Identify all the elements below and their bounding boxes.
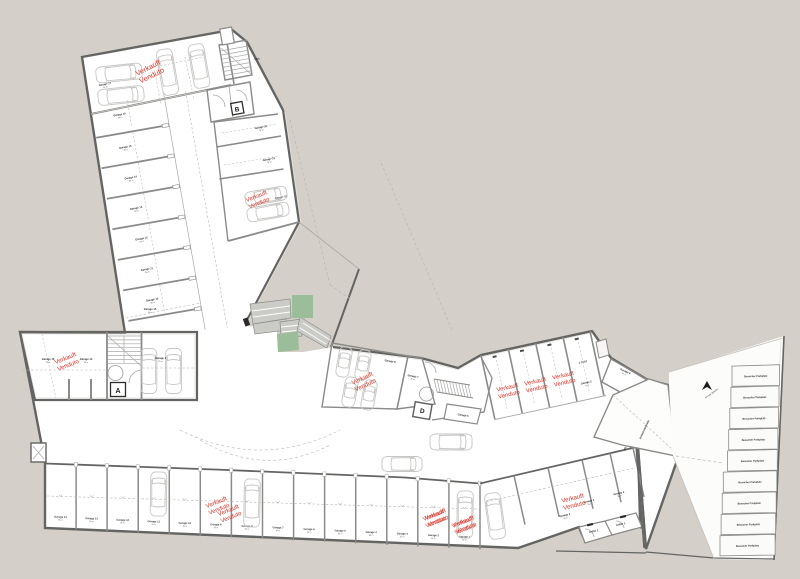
svg-text:Besucher Parkplatz: Besucher Parkplatz [744, 375, 768, 379]
svg-text:Besucher Parkplatz: Besucher Parkplatz [742, 438, 766, 442]
svg-text:Besucher Parkplatz: Besucher Parkplatz [737, 523, 761, 527]
svg-text:Garage 13: Garage 13 [42, 357, 55, 361]
svg-text:Garage 14: Garage 14 [80, 357, 93, 361]
svg-text:35 m: 35 m [151, 524, 156, 526]
svg-text:35 m: 35 m [46, 362, 51, 364]
svg-text:35 m: 35 m [338, 533, 343, 535]
svg-text:35 m: 35 m [307, 532, 312, 534]
svg-text:Besucher Parkplatz: Besucher Parkplatz [738, 481, 762, 485]
svg-text:Garage 13: Garage 13 [85, 516, 98, 520]
svg-text:Besucher Parkplatz: Besucher Parkplatz [736, 544, 760, 548]
svg-text:Garage 14: Garage 14 [54, 515, 67, 519]
svg-text:35 m: 35 m [158, 361, 163, 363]
svg-text:Garage 10: Garage 10 [179, 521, 192, 525]
svg-text:Besucher Parkplatz: Besucher Parkplatz [743, 396, 767, 400]
svg-text:Garage 1: Garage 1 [155, 356, 167, 360]
svg-text:35 m: 35 m [369, 535, 374, 537]
svg-text:Garage 2: Garage 2 [428, 533, 440, 537]
svg-text:A: A [115, 388, 120, 395]
svg-text:Besucher Parkplatz: Besucher Parkplatz [742, 417, 766, 421]
svg-text:35 m: 35 m [58, 520, 63, 522]
svg-text:Garage 6: Garage 6 [304, 527, 316, 531]
svg-text:35 m: 35 m [182, 526, 187, 528]
svg-text:Garage 4: Garage 4 [366, 530, 378, 534]
svg-text:35 m: 35 m [245, 529, 250, 531]
svg-text:Besucher Parkplatz: Besucher Parkplatz [741, 459, 765, 463]
svg-text:Garage 12: Garage 12 [116, 518, 129, 522]
svg-text:Garage 3: Garage 3 [397, 531, 409, 535]
svg-text:35 m: 35 m [462, 539, 467, 541]
svg-text:Garage 15: Garage 15 [144, 307, 157, 311]
svg-text:Garage 11: Garage 11 [147, 519, 160, 523]
svg-text:Garage 7: Garage 7 [272, 525, 284, 529]
svg-text:35 m: 35 m [84, 362, 89, 364]
svg-text:35 m: 35 m [276, 530, 281, 532]
svg-text:35 m: 35 m [120, 523, 125, 525]
svg-text:35 m: 35 m [431, 538, 436, 540]
svg-text:Garage 9: Garage 9 [210, 522, 222, 526]
svg-text:35 m: 35 m [400, 536, 405, 538]
svg-text:Besucher Parkplatz: Besucher Parkplatz [738, 502, 762, 506]
svg-text:35 m: 35 m [214, 527, 219, 529]
svg-text:35 m: 35 m [89, 521, 94, 523]
svg-text:Garage 5: Garage 5 [335, 528, 347, 532]
